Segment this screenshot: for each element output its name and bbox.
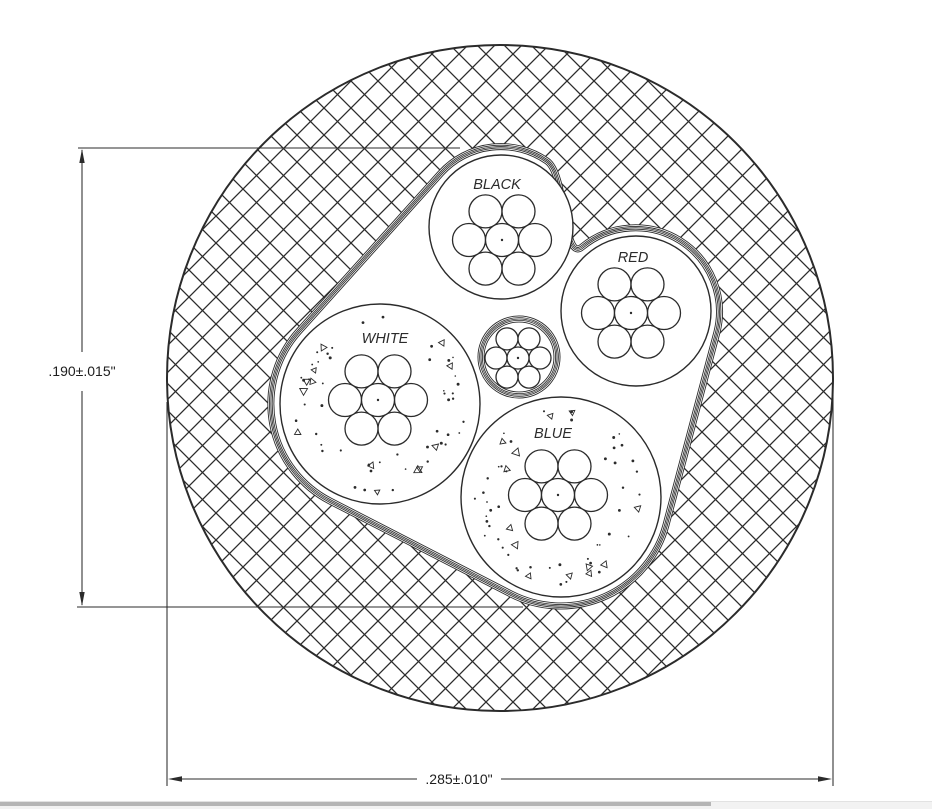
stipple-dot xyxy=(396,453,398,455)
wire-strand xyxy=(345,412,378,445)
stipple-dot xyxy=(440,442,443,445)
stipple-dot xyxy=(311,364,313,366)
wire-strand xyxy=(582,297,615,330)
stipple-dot xyxy=(482,491,485,494)
stipple-dot xyxy=(447,359,450,362)
wire-strand xyxy=(502,195,535,228)
stipple-dot xyxy=(497,538,499,540)
stipple-dot xyxy=(498,466,500,468)
drawing-page: { "diagram": { "type": "cable-cross-sect… xyxy=(0,0,932,809)
wire-strand xyxy=(631,268,664,301)
center-mark xyxy=(630,312,632,314)
core-height-dimension-label: .190±.015" xyxy=(48,363,115,379)
stipple-dot xyxy=(317,361,319,363)
stipple-dot xyxy=(474,498,476,500)
stipple-dot xyxy=(382,316,385,319)
conductor-label-white: WHITE xyxy=(362,331,409,347)
stipple-dot xyxy=(549,567,551,569)
stipple-dot xyxy=(340,449,342,451)
stipple-dot xyxy=(428,358,431,361)
stipple-dot xyxy=(515,567,517,569)
stipple-dot xyxy=(362,321,365,324)
stipple-dot xyxy=(604,457,607,460)
stipple-dot xyxy=(304,403,306,405)
stipple-dot xyxy=(458,432,460,434)
stipple-dot xyxy=(322,382,324,384)
stipple-dot xyxy=(426,446,429,449)
stipple-dot xyxy=(543,410,545,412)
stipple-dot xyxy=(436,430,439,433)
wire-strand xyxy=(469,252,502,285)
center-mark xyxy=(377,399,379,401)
stipple-dot xyxy=(392,489,394,491)
wire-strand xyxy=(502,252,535,285)
stipple-dot xyxy=(598,571,601,574)
stipple-dot xyxy=(326,353,328,355)
stipple-dot xyxy=(570,419,573,422)
stipple-dot xyxy=(452,398,454,400)
wire-strand xyxy=(529,347,551,369)
stipple-dot xyxy=(445,443,447,445)
stipple-dot xyxy=(405,468,407,470)
cable-cross-section-diagram: BLACK RED WHITE BLUE .190±.015" .285±.01… xyxy=(0,0,932,801)
stipple-dot xyxy=(331,347,333,349)
center-mark xyxy=(557,494,559,496)
wire-strand xyxy=(485,347,507,369)
stipple-dot xyxy=(452,392,454,394)
stipple-dot xyxy=(622,486,624,488)
stipple-dot xyxy=(320,404,323,407)
conductor-label-blue: BLUE xyxy=(534,426,572,442)
stipple-dot xyxy=(363,489,366,492)
overall-diameter-dimension-label: .285±.010" xyxy=(425,771,492,787)
wire-strand xyxy=(648,297,681,330)
stipple-dot xyxy=(321,450,323,452)
stipple-dot xyxy=(354,486,357,489)
wire-strand xyxy=(378,355,411,388)
stipple-dot xyxy=(300,377,302,379)
stipple-dot xyxy=(315,433,317,435)
stipple-dot xyxy=(587,558,589,560)
stipple-dot xyxy=(621,444,624,447)
stipple-dot xyxy=(503,432,505,434)
scrollbar-thumb[interactable] xyxy=(0,802,711,806)
wire-strand xyxy=(631,325,664,358)
stipple-dot xyxy=(484,535,486,537)
stipple-dot xyxy=(507,554,509,556)
stipple-dot xyxy=(443,393,445,395)
stipple-dot xyxy=(614,461,617,464)
stipple-dot xyxy=(485,515,487,517)
stipple-dot xyxy=(447,398,450,401)
stipple-dot xyxy=(462,421,464,423)
stipple-dot xyxy=(559,583,562,586)
stipple-dot xyxy=(517,569,519,571)
stipple-dot xyxy=(597,544,599,546)
wire-strand xyxy=(509,479,542,512)
stipple-dot xyxy=(488,525,490,527)
stipple-dot xyxy=(529,566,532,569)
wire-strand xyxy=(519,224,552,257)
wire-strand xyxy=(496,366,518,388)
wire-strand xyxy=(525,507,558,540)
wire-strand xyxy=(378,412,411,445)
stipple-dot xyxy=(500,465,502,467)
stipple-dot xyxy=(443,390,445,392)
stipple-dot xyxy=(628,535,630,537)
stipple-dot xyxy=(489,509,492,512)
stipple-dot xyxy=(565,581,567,583)
stipple-dot xyxy=(430,345,433,348)
stipple-dot xyxy=(497,505,500,508)
stipple-dot xyxy=(510,440,513,443)
wire-strand xyxy=(558,450,591,483)
center-mark xyxy=(501,239,503,241)
wire-strand xyxy=(518,366,540,388)
stipple-dot xyxy=(295,419,298,422)
stipple-dot xyxy=(486,477,488,479)
conductor-label-black: BLACK xyxy=(473,177,522,193)
stipple-dot xyxy=(638,494,640,496)
stipple-dot xyxy=(302,379,305,382)
wire-strand xyxy=(598,268,631,301)
wire-strand xyxy=(575,479,608,512)
stipple-dot xyxy=(618,509,621,512)
stipple-dot xyxy=(631,459,634,462)
wire-strand xyxy=(518,328,540,350)
stipple-dot xyxy=(612,436,615,439)
stipple-dot xyxy=(618,433,620,435)
center-mark xyxy=(517,357,519,359)
wire-strand xyxy=(329,384,362,417)
stipple-dot xyxy=(452,357,454,359)
wire-strand xyxy=(558,507,591,540)
stipple-dot xyxy=(608,533,611,536)
horizontal-scrollbar[interactable] xyxy=(0,801,932,809)
stipple-dot xyxy=(636,470,638,472)
wire-strand xyxy=(598,325,631,358)
wire-strand xyxy=(453,224,486,257)
stipple-dot xyxy=(329,356,332,359)
stipple-dot xyxy=(486,501,488,503)
stipple-dot xyxy=(427,460,429,462)
stipple-dot xyxy=(589,562,592,565)
stipple-dot xyxy=(316,351,318,353)
stipple-dot xyxy=(613,447,616,450)
arrow-right-icon xyxy=(818,776,832,781)
arrow-left-icon xyxy=(168,776,182,781)
stipple-dot xyxy=(370,470,373,473)
wire-strand xyxy=(469,195,502,228)
stipple-dot xyxy=(502,547,504,549)
stipple-dot xyxy=(558,563,561,566)
wire-strand xyxy=(345,355,378,388)
wire-strand xyxy=(395,384,428,417)
stipple-dot xyxy=(599,544,601,546)
stipple-dot xyxy=(486,520,489,523)
conductor-label-red: RED xyxy=(618,250,649,266)
arrow-up-icon xyxy=(79,149,84,163)
stipple-dot xyxy=(457,383,460,386)
wire-strand xyxy=(496,328,518,350)
stipple-dot xyxy=(454,375,456,377)
arrow-down-icon xyxy=(79,592,84,606)
stipple-dot xyxy=(505,470,507,472)
wire-strand xyxy=(525,450,558,483)
stipple-dot xyxy=(320,444,322,446)
stipple-dot xyxy=(447,433,450,436)
stipple-dot xyxy=(379,461,381,463)
